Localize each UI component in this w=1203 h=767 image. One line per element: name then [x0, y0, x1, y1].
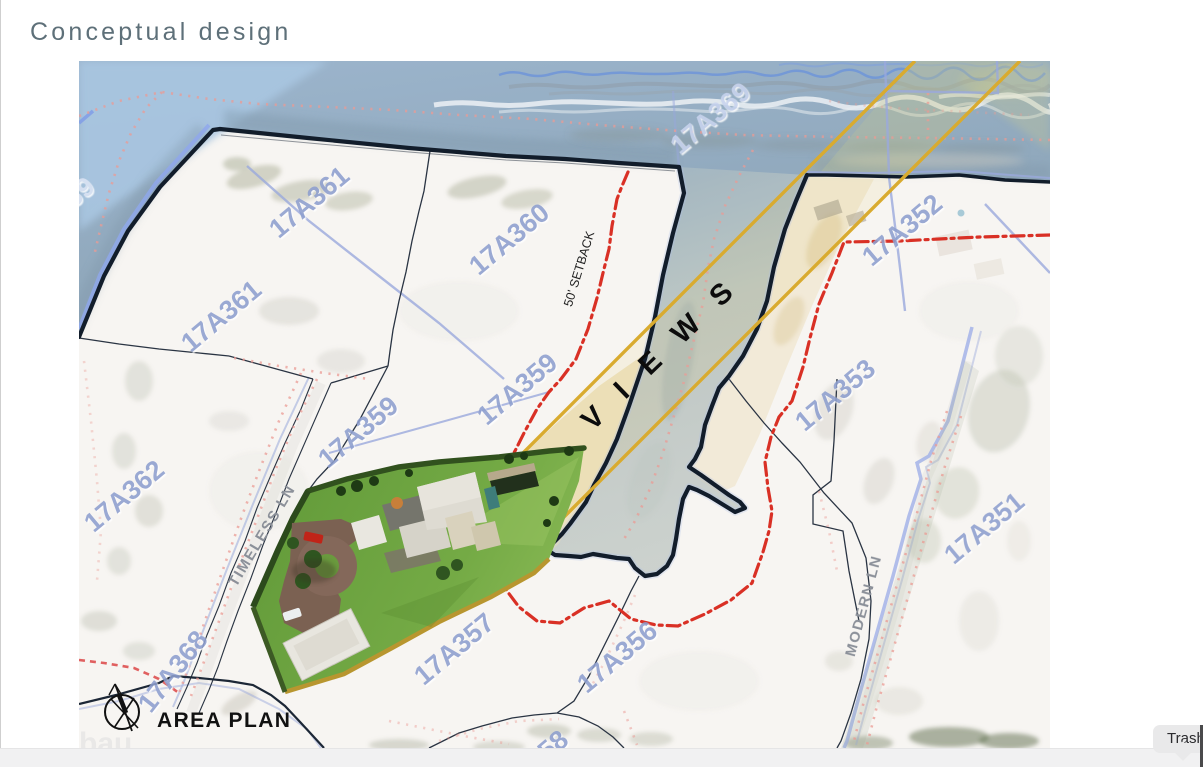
svg-text:AREA PLAN: AREA PLAN: [157, 709, 291, 732]
svg-text:bau: bau: [79, 727, 132, 748]
